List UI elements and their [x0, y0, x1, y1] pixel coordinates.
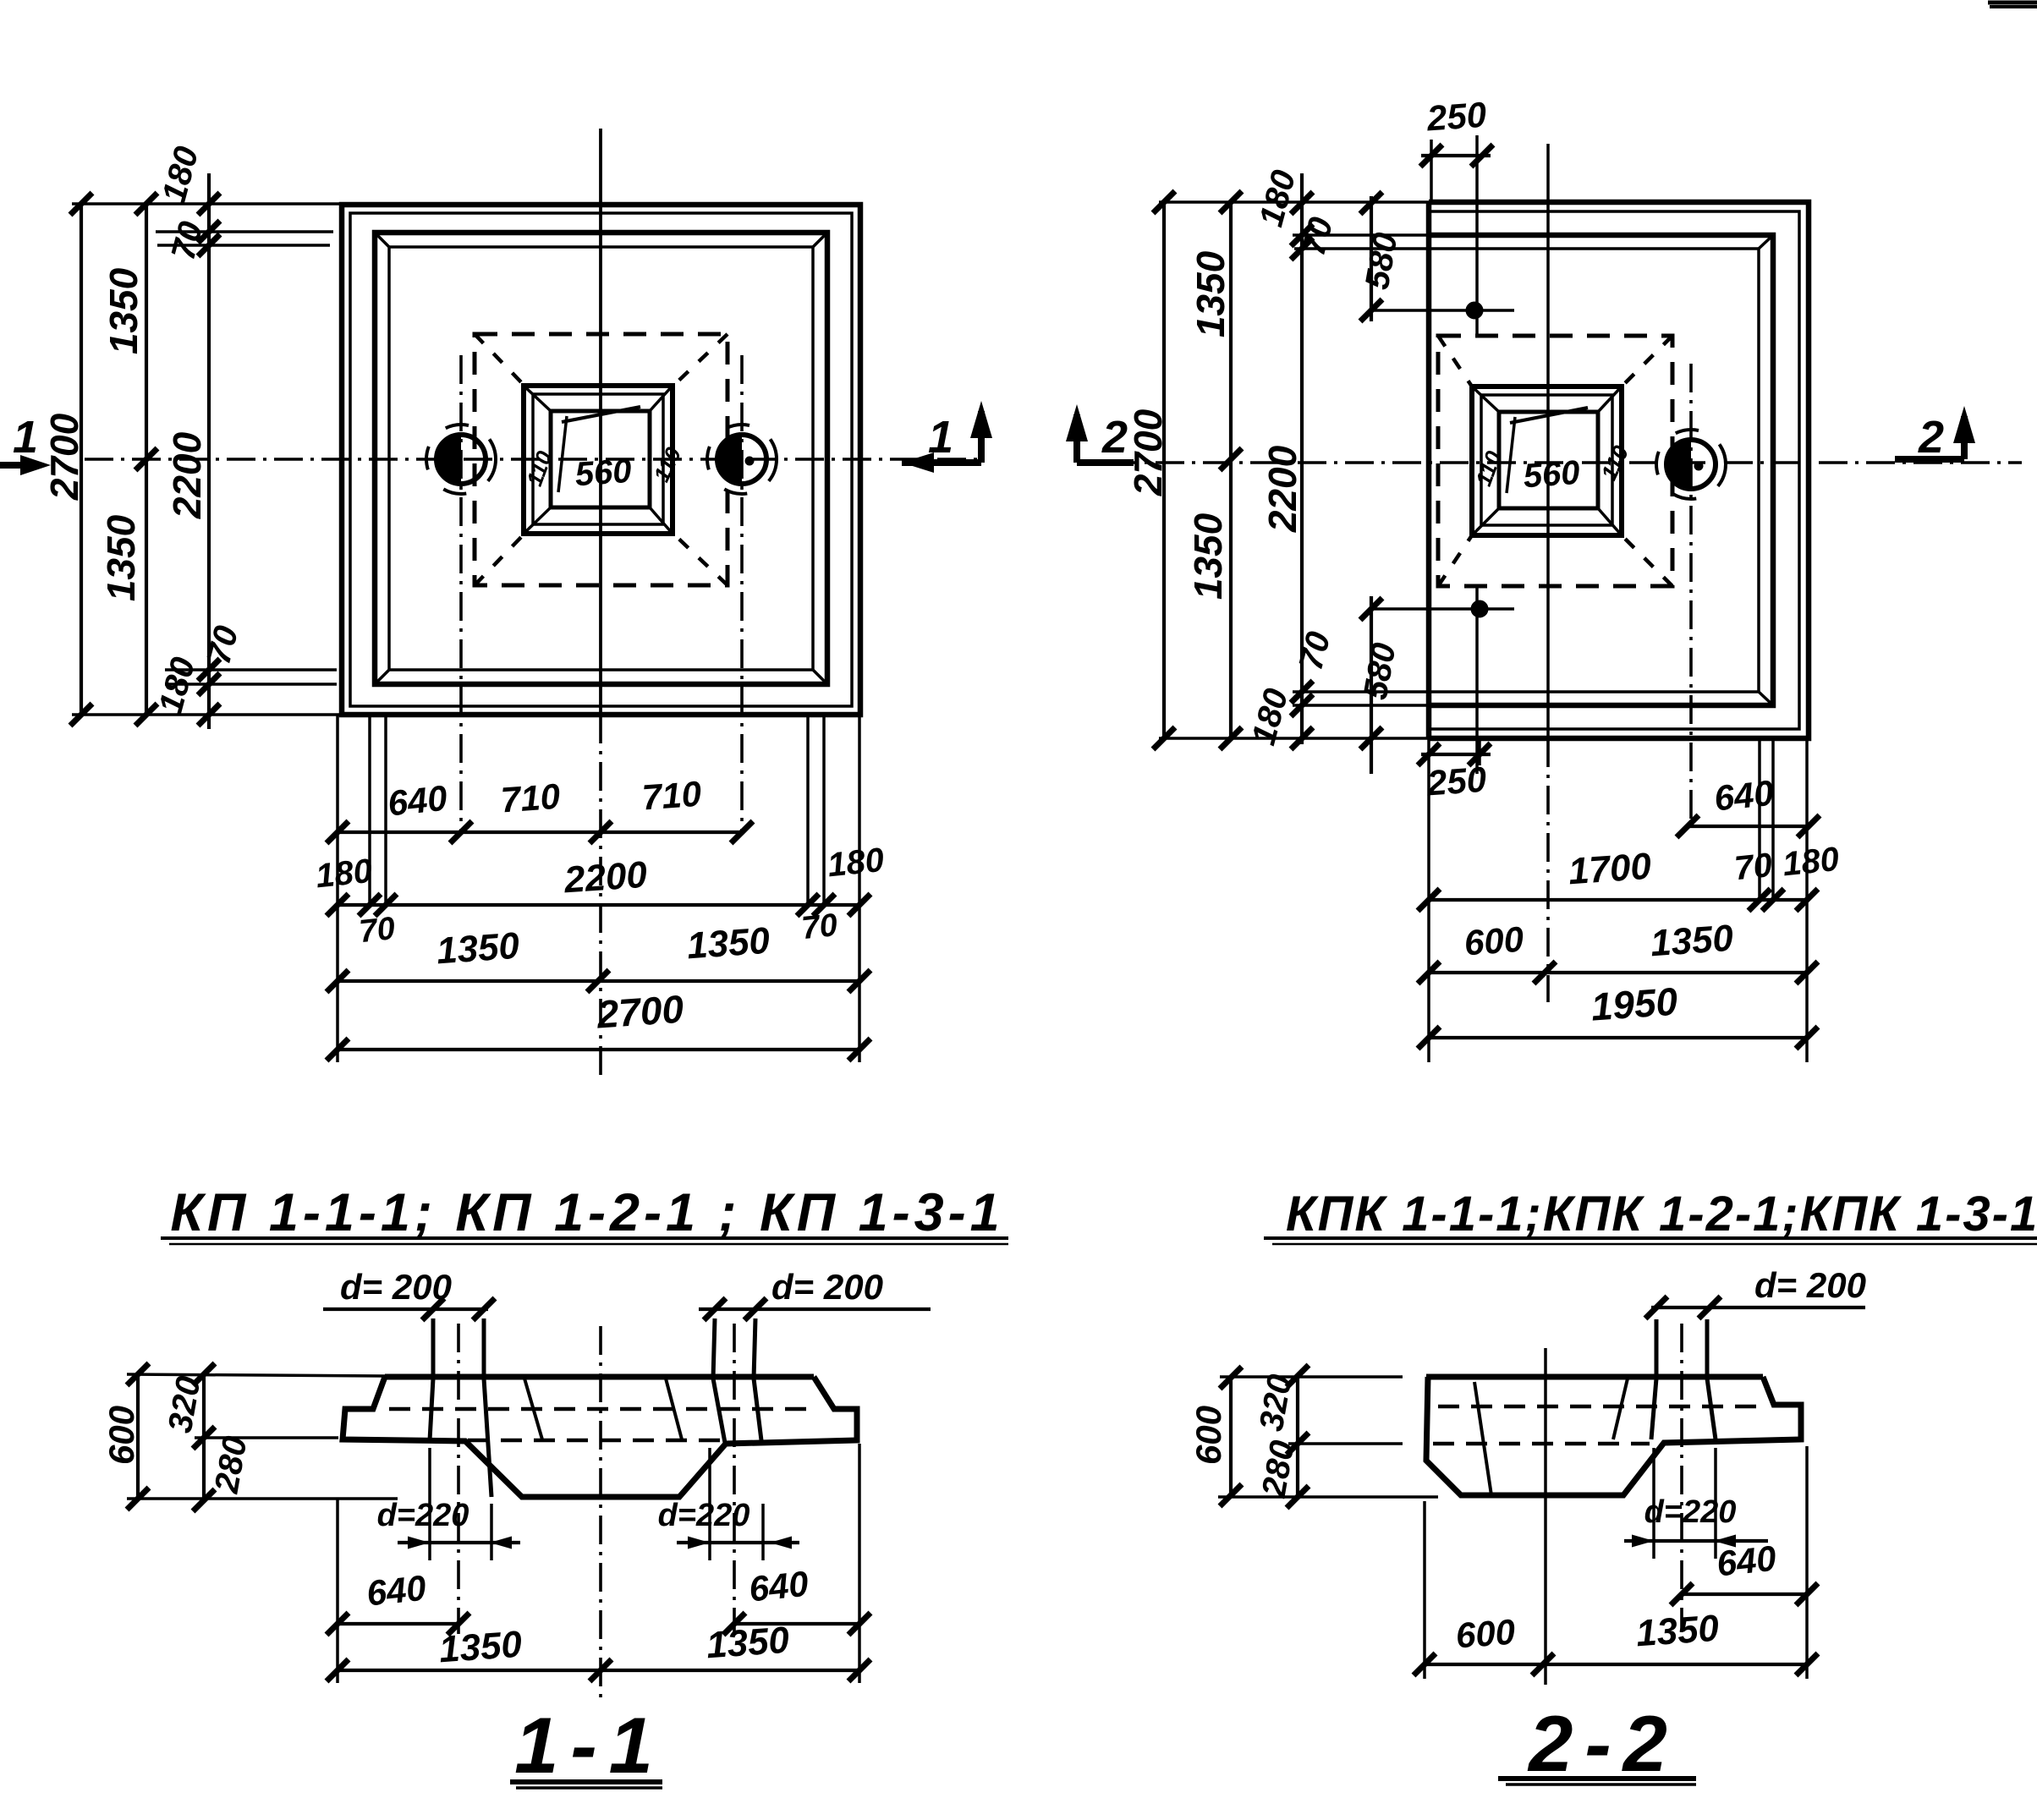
svg-text:640: 640: [747, 1564, 810, 1609]
svg-text:250: 250: [1425, 759, 1487, 803]
svg-text:70: 70: [800, 907, 839, 946]
svg-text:2700: 2700: [42, 413, 86, 501]
svg-text:1350: 1350: [99, 514, 143, 601]
svg-text:d=220: d=220: [377, 1498, 469, 1533]
svg-text:2200: 2200: [1260, 445, 1304, 533]
svg-text:1350: 1350: [685, 920, 771, 968]
svg-text:1-1: 1-1: [514, 1701, 665, 1790]
svg-text:КП 1-1-1; КП 1-2-1 ; КП 1-3-1: КП 1-1-1; КП 1-2-1 ; КП 1-3-1: [170, 1183, 1003, 1242]
svg-text:640: 640: [365, 1568, 428, 1614]
svg-text:2: 2: [1918, 412, 1944, 463]
svg-text:2-2: 2-2: [1527, 1699, 1679, 1788]
svg-text:d= 200: d= 200: [1754, 1265, 1866, 1305]
svg-text:2200: 2200: [562, 854, 649, 902]
svg-text:640: 640: [1712, 773, 1776, 819]
svg-text:1700: 1700: [1567, 846, 1653, 893]
svg-text:600: 600: [1454, 1612, 1516, 1656]
svg-text:2700: 2700: [595, 987, 685, 1037]
svg-text:180: 180: [826, 841, 886, 885]
svg-text:2: 2: [1101, 412, 1128, 463]
svg-text:2200: 2200: [165, 431, 209, 519]
svg-text:d=220: d=220: [1644, 1494, 1737, 1530]
svg-text:1350: 1350: [1186, 513, 1230, 600]
svg-text:250: 250: [1425, 95, 1487, 139]
svg-text:600: 600: [1189, 1406, 1228, 1465]
svg-text:600: 600: [1463, 919, 1524, 963]
svg-text:1350: 1350: [435, 925, 521, 973]
svg-text:560: 560: [1522, 454, 1581, 496]
svg-text:d=220: d=220: [658, 1498, 750, 1533]
svg-text:710: 710: [499, 776, 561, 820]
svg-text:d= 200: d= 200: [771, 1267, 883, 1307]
svg-text:1950: 1950: [1590, 979, 1679, 1029]
svg-text:180: 180: [314, 852, 374, 896]
svg-text:1350: 1350: [102, 267, 145, 354]
svg-text:1: 1: [13, 412, 38, 463]
svg-text:70: 70: [358, 911, 397, 950]
svg-text:710: 710: [640, 774, 702, 818]
svg-text:1: 1: [928, 412, 953, 463]
svg-text:1350: 1350: [437, 1624, 524, 1671]
svg-text:70: 70: [1732, 847, 1774, 887]
svg-text:1350: 1350: [1189, 250, 1233, 337]
svg-text:600: 600: [102, 1406, 141, 1465]
svg-text:1350: 1350: [705, 1620, 791, 1667]
svg-text:1350: 1350: [1634, 1608, 1721, 1655]
svg-text:560: 560: [574, 452, 633, 494]
svg-text:d= 200: d= 200: [340, 1267, 452, 1307]
svg-text:1350: 1350: [1649, 918, 1735, 965]
svg-text:180: 180: [1781, 841, 1841, 884]
svg-text:640: 640: [1715, 1538, 1778, 1584]
svg-text:КПК 1-1-1;КПК 1-2-1;КПК 1-3-1: КПК 1-1-1;КПК 1-2-1;КПК 1-3-1: [1286, 1187, 2037, 1242]
svg-text:640: 640: [386, 778, 449, 824]
